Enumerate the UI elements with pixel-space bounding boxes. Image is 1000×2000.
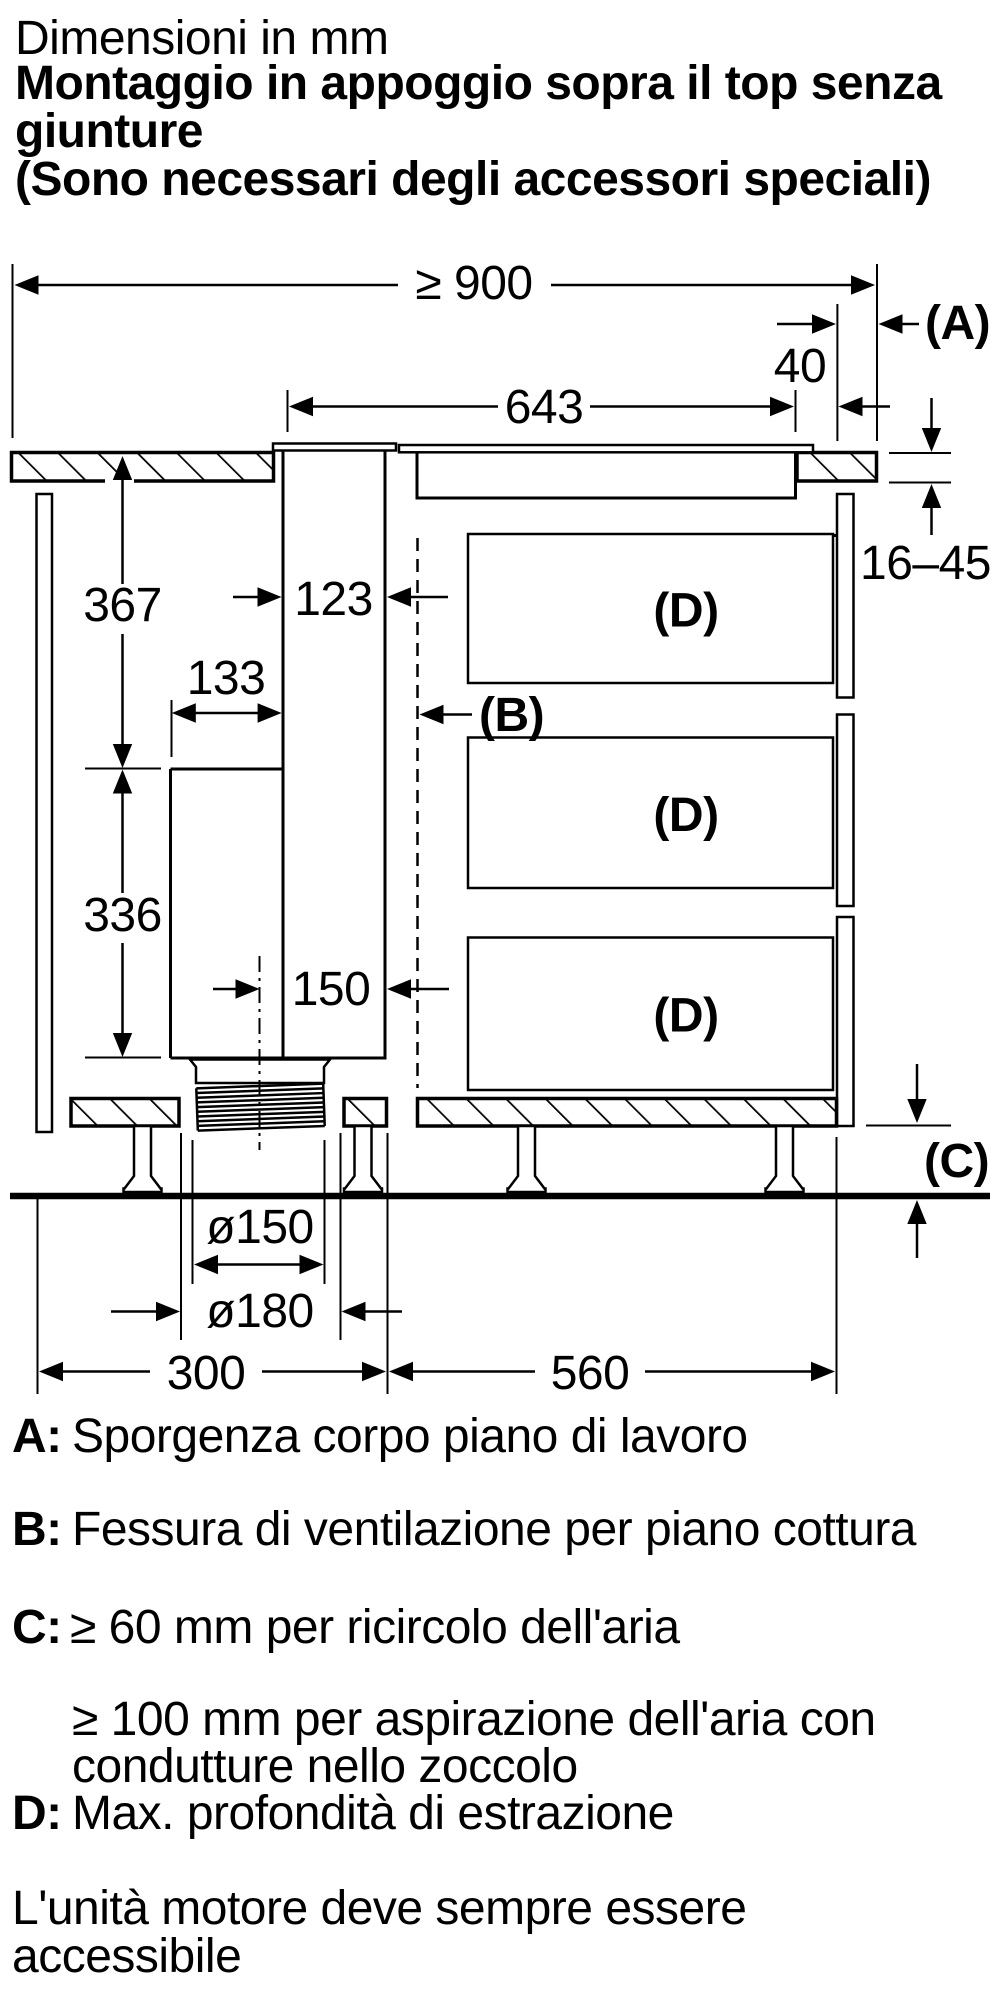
svg-text:Montaggio in appoggio sopra il: Montaggio in appoggio sopra il top senza: [15, 57, 942, 110]
svg-text:133: 133: [187, 652, 266, 705]
svg-text:Sporgenza corpo piano di lavor: Sporgenza corpo piano di lavoro: [72, 1410, 748, 1463]
svg-text:(D): (D): [653, 789, 718, 842]
svg-text:Max. profondità di estrazione: Max. profondità di estrazione: [72, 1787, 674, 1840]
svg-text:150: 150: [292, 963, 371, 1016]
svg-text:≥ 60 mm per ricircolo dell'ari: ≥ 60 mm per ricircolo dell'aria: [70, 1601, 680, 1654]
svg-text:(D): (D): [653, 585, 718, 638]
svg-text:300: 300: [167, 1347, 246, 1400]
svg-text:(C): (C): [924, 1135, 989, 1188]
svg-text:condutture nello zoccolo: condutture nello zoccolo: [72, 1740, 578, 1793]
svg-text:(Sono necessari degli accessor: (Sono necessari degli accessori speciali…: [15, 153, 931, 206]
svg-text:643: 643: [505, 381, 584, 434]
svg-text:560: 560: [551, 1347, 630, 1400]
svg-text:L'unità motore deve sempre ess: L'unità motore deve sempre essere: [12, 1882, 746, 1935]
svg-text:A:: A:: [12, 1410, 62, 1463]
svg-text:Fessura di ventilazione per pi: Fessura di ventilazione per piano cottur…: [72, 1503, 917, 1556]
svg-text:≥ 900: ≥ 900: [415, 257, 532, 310]
svg-text:B:: B:: [12, 1503, 62, 1556]
svg-text:123: 123: [294, 573, 373, 626]
svg-text:accessibile: accessibile: [12, 1930, 241, 1983]
svg-text:C:: C:: [12, 1601, 62, 1654]
svg-text:336: 336: [83, 889, 162, 942]
svg-text:≥ 100 mm per aspirazione dell': ≥ 100 mm per aspirazione dell'aria con: [72, 1693, 876, 1746]
svg-text:(D): (D): [653, 990, 718, 1043]
svg-text:(B): (B): [479, 689, 544, 742]
svg-text:ø180: ø180: [206, 1285, 313, 1338]
svg-text:ø150: ø150: [206, 1201, 313, 1254]
svg-text:giunture: giunture: [15, 105, 203, 158]
svg-text:D:: D:: [12, 1787, 62, 1840]
svg-text:40: 40: [774, 340, 826, 393]
svg-text:16–45: 16–45: [860, 537, 991, 590]
svg-text:367: 367: [83, 579, 162, 632]
svg-text:(A): (A): [925, 297, 990, 350]
